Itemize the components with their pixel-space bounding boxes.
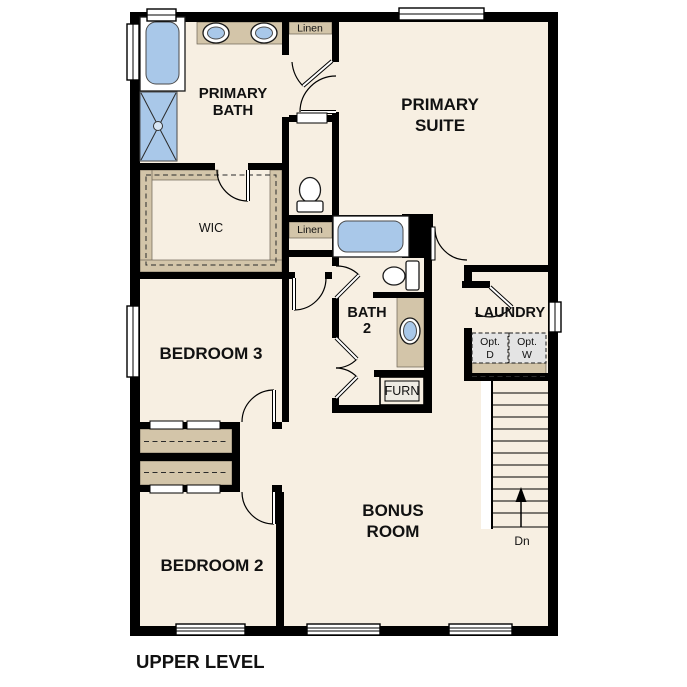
upper-level-floor-plan: PRIMARY BATH PRIMARY SUITE WIC BEDROOM 3…	[0, 0, 687, 687]
water-closet-opening	[297, 113, 327, 123]
floor-plan-canvas: PRIMARY BATH PRIMARY SUITE WIC BEDROOM 3…	[0, 0, 687, 687]
furnace-label: FURN	[385, 384, 420, 398]
bath2-tub-icon	[338, 221, 403, 252]
window-bottom-bedroom2	[176, 624, 245, 635]
bedroom2-label: BEDROOM 2	[161, 556, 264, 575]
suite-exit-door-leaf	[431, 227, 435, 260]
window-top-suite	[399, 8, 484, 20]
opt-washer-label-line2: W	[522, 349, 532, 361]
primary-bath-label-line1: PRIMARY	[199, 85, 268, 102]
bonus-room-label-line1: BONUS	[362, 501, 423, 520]
stair-gap	[481, 381, 491, 529]
opt-washer-label-line1: Opt.	[517, 336, 537, 348]
linen-upper-label: Linen	[297, 23, 323, 35]
laundry-label: LAUNDRY	[475, 305, 546, 321]
wic-label: WIC	[199, 221, 223, 235]
primary-bath-tub-icon	[146, 22, 179, 84]
window-left-bath	[127, 24, 139, 80]
bedroom3-label: BEDROOM 3	[160, 344, 263, 363]
bath2-label-line1: BATH	[347, 305, 386, 321]
linen-lower-label: Linen	[297, 224, 323, 236]
bath2-label-line2: 2	[363, 321, 371, 337]
floor-area	[140, 22, 548, 626]
bonus-room-label-line2: ROOM	[367, 522, 420, 541]
bedroom3-closet-slider	[150, 421, 183, 429]
window-top-bath	[147, 9, 176, 21]
stairs-down-label: Dn	[514, 534, 529, 548]
window-bottom-bonus-left	[307, 624, 380, 635]
primary-suite-label-line2: SUITE	[415, 116, 465, 135]
bedroom3-closet-slider	[187, 421, 220, 429]
window-bottom-bonus-right	[449, 624, 512, 635]
plan-title: UPPER LEVEL	[136, 651, 265, 672]
primary-bath-label-line2: BATH	[213, 102, 254, 119]
stair-stringer	[491, 381, 493, 529]
primary-suite-label-line1: PRIMARY	[401, 95, 479, 114]
bedroom2-closet-slider	[150, 485, 183, 493]
wic-shelf-bottom	[140, 260, 282, 272]
primary-toilet-icon	[300, 178, 321, 203]
bedroom2-closet-slider	[187, 485, 220, 493]
window-left-bedroom3	[127, 306, 139, 377]
bath2-toilet-icon	[383, 267, 405, 285]
shower-drain-icon	[154, 122, 163, 131]
opt-dryer-label-line1: Opt.	[480, 336, 500, 348]
window-right-laundry	[549, 302, 561, 332]
laundry-counter-strip	[472, 363, 546, 374]
opt-dryer-label-line2: D	[486, 349, 494, 361]
